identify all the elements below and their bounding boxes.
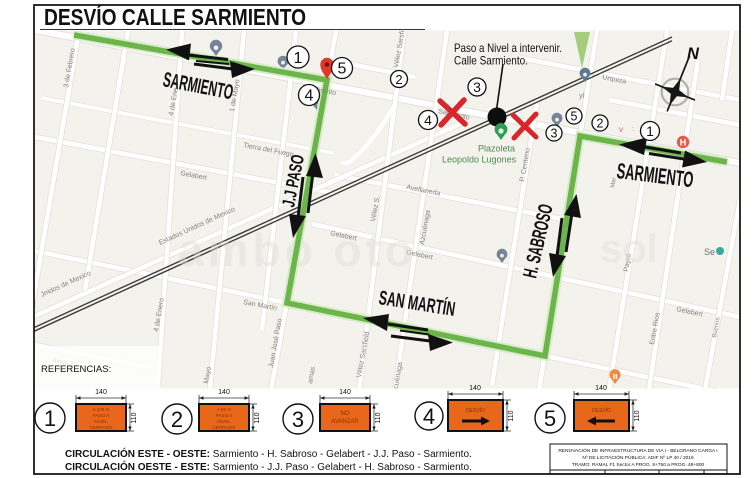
svg-text:3: 3 [292, 407, 304, 432]
svg-text:3: 3 [551, 127, 558, 141]
svg-text:2: 2 [597, 117, 604, 131]
svg-text:1: 1 [44, 406, 56, 431]
svg-text:sol: sol [600, 227, 658, 271]
svg-text:Plazoleta: Plazoleta [478, 144, 515, 154]
svg-text::: : [632, 126, 634, 133]
svg-text:CIRCULACIÓN ESTE - OESTE: Sar: CIRCULACIÓN ESTE - OESTE: Sarmiento - H.… [65, 447, 472, 460]
svg-text:Se: Se [704, 247, 715, 257]
svg-text:140: 140 [218, 389, 230, 396]
svg-text:Calle Sarmiento.: Calle Sarmiento. [454, 54, 528, 68]
svg-text:PASO A: PASO A [216, 413, 233, 418]
svg-text:DESVÍO: DESVÍO [592, 407, 611, 414]
svg-text:4: 4 [424, 112, 432, 128]
svg-text:Nº DE LICITACIÓN PÚBLICA: ADIF: Nº DE LICITACIÓN PÚBLICA: ADIF Nº LP 40 … [582, 454, 694, 461]
svg-text:1: 1 [646, 123, 654, 139]
svg-text:5: 5 [338, 61, 347, 78]
svg-text:110: 110 [131, 412, 138, 423]
svg-text:v: v [619, 125, 623, 134]
svg-text:140: 140 [95, 389, 107, 396]
svg-text:AVANZAR: AVANZAR [331, 419, 359, 425]
svg-text:yl: yl [579, 93, 585, 100]
svg-text:DESVÍO CALLE SARMIENTO: DESVÍO CALLE SARMIENTO [44, 3, 306, 30]
svg-text:140: 140 [595, 385, 607, 392]
svg-text:TRAMO: RAMAL F1 Sector A PROG.: TRAMO: RAMAL F1 Sector A PROG. 8+750 a P… [572, 462, 705, 468]
svg-text:A 50 m: A 50 m [217, 407, 231, 412]
svg-text:4: 4 [423, 404, 435, 429]
svg-text:3: 3 [473, 79, 481, 95]
svg-text:A 100 m: A 100 m [93, 407, 110, 412]
svg-text:CIRCULACIÓN OESTE - ESTE: Sar: CIRCULACIÓN OESTE - ESTE: Sarmiento - J.… [65, 460, 472, 473]
svg-text:DESVÍO: DESVÍO [466, 407, 485, 414]
svg-text:CERRADO: CERRADO [213, 425, 236, 430]
svg-text:1: 1 [294, 50, 303, 67]
svg-text:NO: NO [341, 411, 350, 417]
svg-text:PASO A: PASO A [93, 413, 110, 418]
svg-text:N: N [687, 45, 700, 63]
svg-text:140: 140 [469, 385, 481, 392]
svg-text:Leopoldo Lugones: Leopoldo Lugones [442, 155, 517, 165]
svg-text:H: H [680, 137, 687, 147]
svg-text:4: 4 [305, 88, 314, 105]
svg-text:CERRADO: CERRADO [90, 425, 113, 430]
svg-text:2: 2 [395, 72, 402, 87]
svg-text:110: 110 [634, 410, 641, 421]
svg-text:NIVEL: NIVEL [217, 419, 231, 424]
svg-text:140: 140 [339, 389, 351, 396]
svg-text:REFERENCIAS:: REFERENCIAS: [41, 364, 111, 375]
svg-text:2: 2 [171, 407, 183, 432]
svg-text:RENOVACIÓN DE INFRAESTRUCTURA: RENOVACIÓN DE INFRAESTRUCTURA DE VIA I -… [558, 447, 717, 454]
svg-text:110: 110 [375, 412, 382, 423]
svg-text:5: 5 [571, 110, 578, 124]
svg-text:110: 110 [508, 410, 515, 421]
svg-text:110: 110 [254, 412, 261, 423]
svg-text:NIVEL: NIVEL [94, 419, 108, 424]
svg-text:5: 5 [544, 406, 556, 431]
